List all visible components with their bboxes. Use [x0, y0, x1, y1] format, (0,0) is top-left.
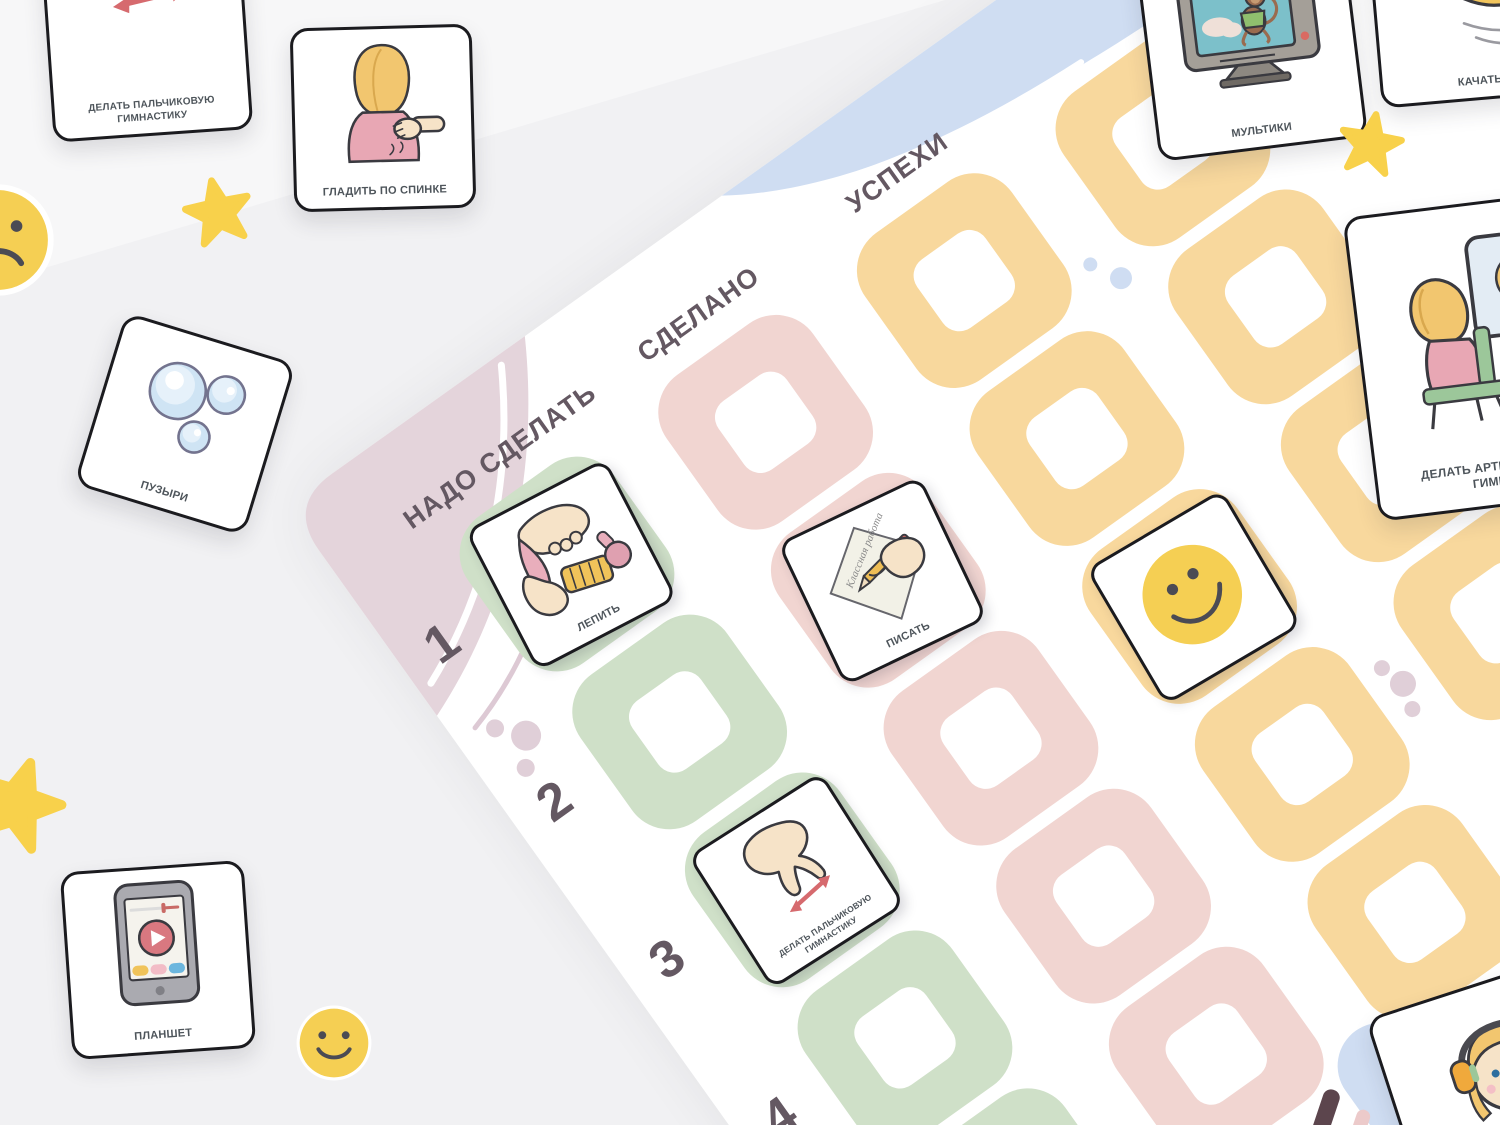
cell-slot-hole	[1244, 696, 1361, 813]
sad-face-icon	[0, 182, 56, 298]
star-sticker[interactable]	[176, 169, 259, 252]
scene: ЛЕПИТЬ Классная работа ПИСАТЬ	[0, 0, 1500, 1125]
star-icon	[176, 169, 259, 252]
card-label: ПЛАНШЕТ	[80, 1022, 247, 1048]
card-label: ДЕЛАТЬ ПАЛЬЧИКОВУЮ ГИМНАСТИКУ	[60, 91, 243, 130]
cell-slot-hole	[846, 979, 963, 1096]
card-label: КАЧАТЬ В ПЛЕДЕ	[1389, 61, 1500, 96]
card-planshet[interactable]: ПЛАНШЕТ	[60, 860, 257, 1060]
star-sticker[interactable]	[1333, 105, 1409, 181]
happy-face-icon	[295, 1004, 373, 1082]
cell-slot-hole	[707, 364, 824, 481]
mirror-exercise-illustration	[1384, 212, 1500, 445]
walking-fingers-illustration	[61, 0, 221, 28]
cell-slot-hole	[1018, 380, 1135, 497]
card-label: ДЕЛАТЬ АРТИКУЛЯЦИОННУЮ ГИМНАСТИКУ	[1383, 441, 1500, 504]
blanket-swing-illustration	[1404, 0, 1500, 65]
card-kachat-v-plede[interactable]: КАЧАТЬ В ПЛЕДЕ	[1363, 0, 1500, 109]
sad-face-sticker[interactable]	[0, 182, 56, 298]
card-label: ГЛАДИТЬ ПО СПИНКЕ	[303, 182, 467, 201]
star-icon	[0, 743, 77, 863]
cell-slot-hole	[621, 663, 738, 780]
card-multiki[interactable]: МУЛЬТИКИ	[1134, 0, 1369, 162]
card-gladit-po-spinke[interactable]: ГЛАДИТЬ ПО СПИНКЕ	[290, 24, 477, 213]
cell-slot-hole	[906, 222, 1023, 339]
cell-slot-hole	[1442, 554, 1500, 671]
cartoons-tv-illustration	[1162, 0, 1339, 120]
cell-slot-hole	[1045, 838, 1162, 955]
tablet-illustration	[91, 873, 222, 1015]
card-finger-gym-loose[interactable]: ДЕЛАТЬ ПАЛЬЧИКОВУЮ ГИМНАСТИКУ	[39, 0, 254, 143]
back-stroking-illustration	[318, 35, 447, 170]
bubbles-illustration	[112, 330, 269, 485]
star-sticker[interactable]	[0, 743, 77, 863]
cell-slot-hole	[1158, 995, 1275, 1112]
cell-slot-hole	[1356, 854, 1473, 971]
cell-slot-hole	[1217, 238, 1334, 355]
happy-face-sticker[interactable]	[295, 1004, 373, 1082]
star-icon	[1333, 105, 1409, 181]
cell-slot-hole	[932, 680, 1049, 797]
